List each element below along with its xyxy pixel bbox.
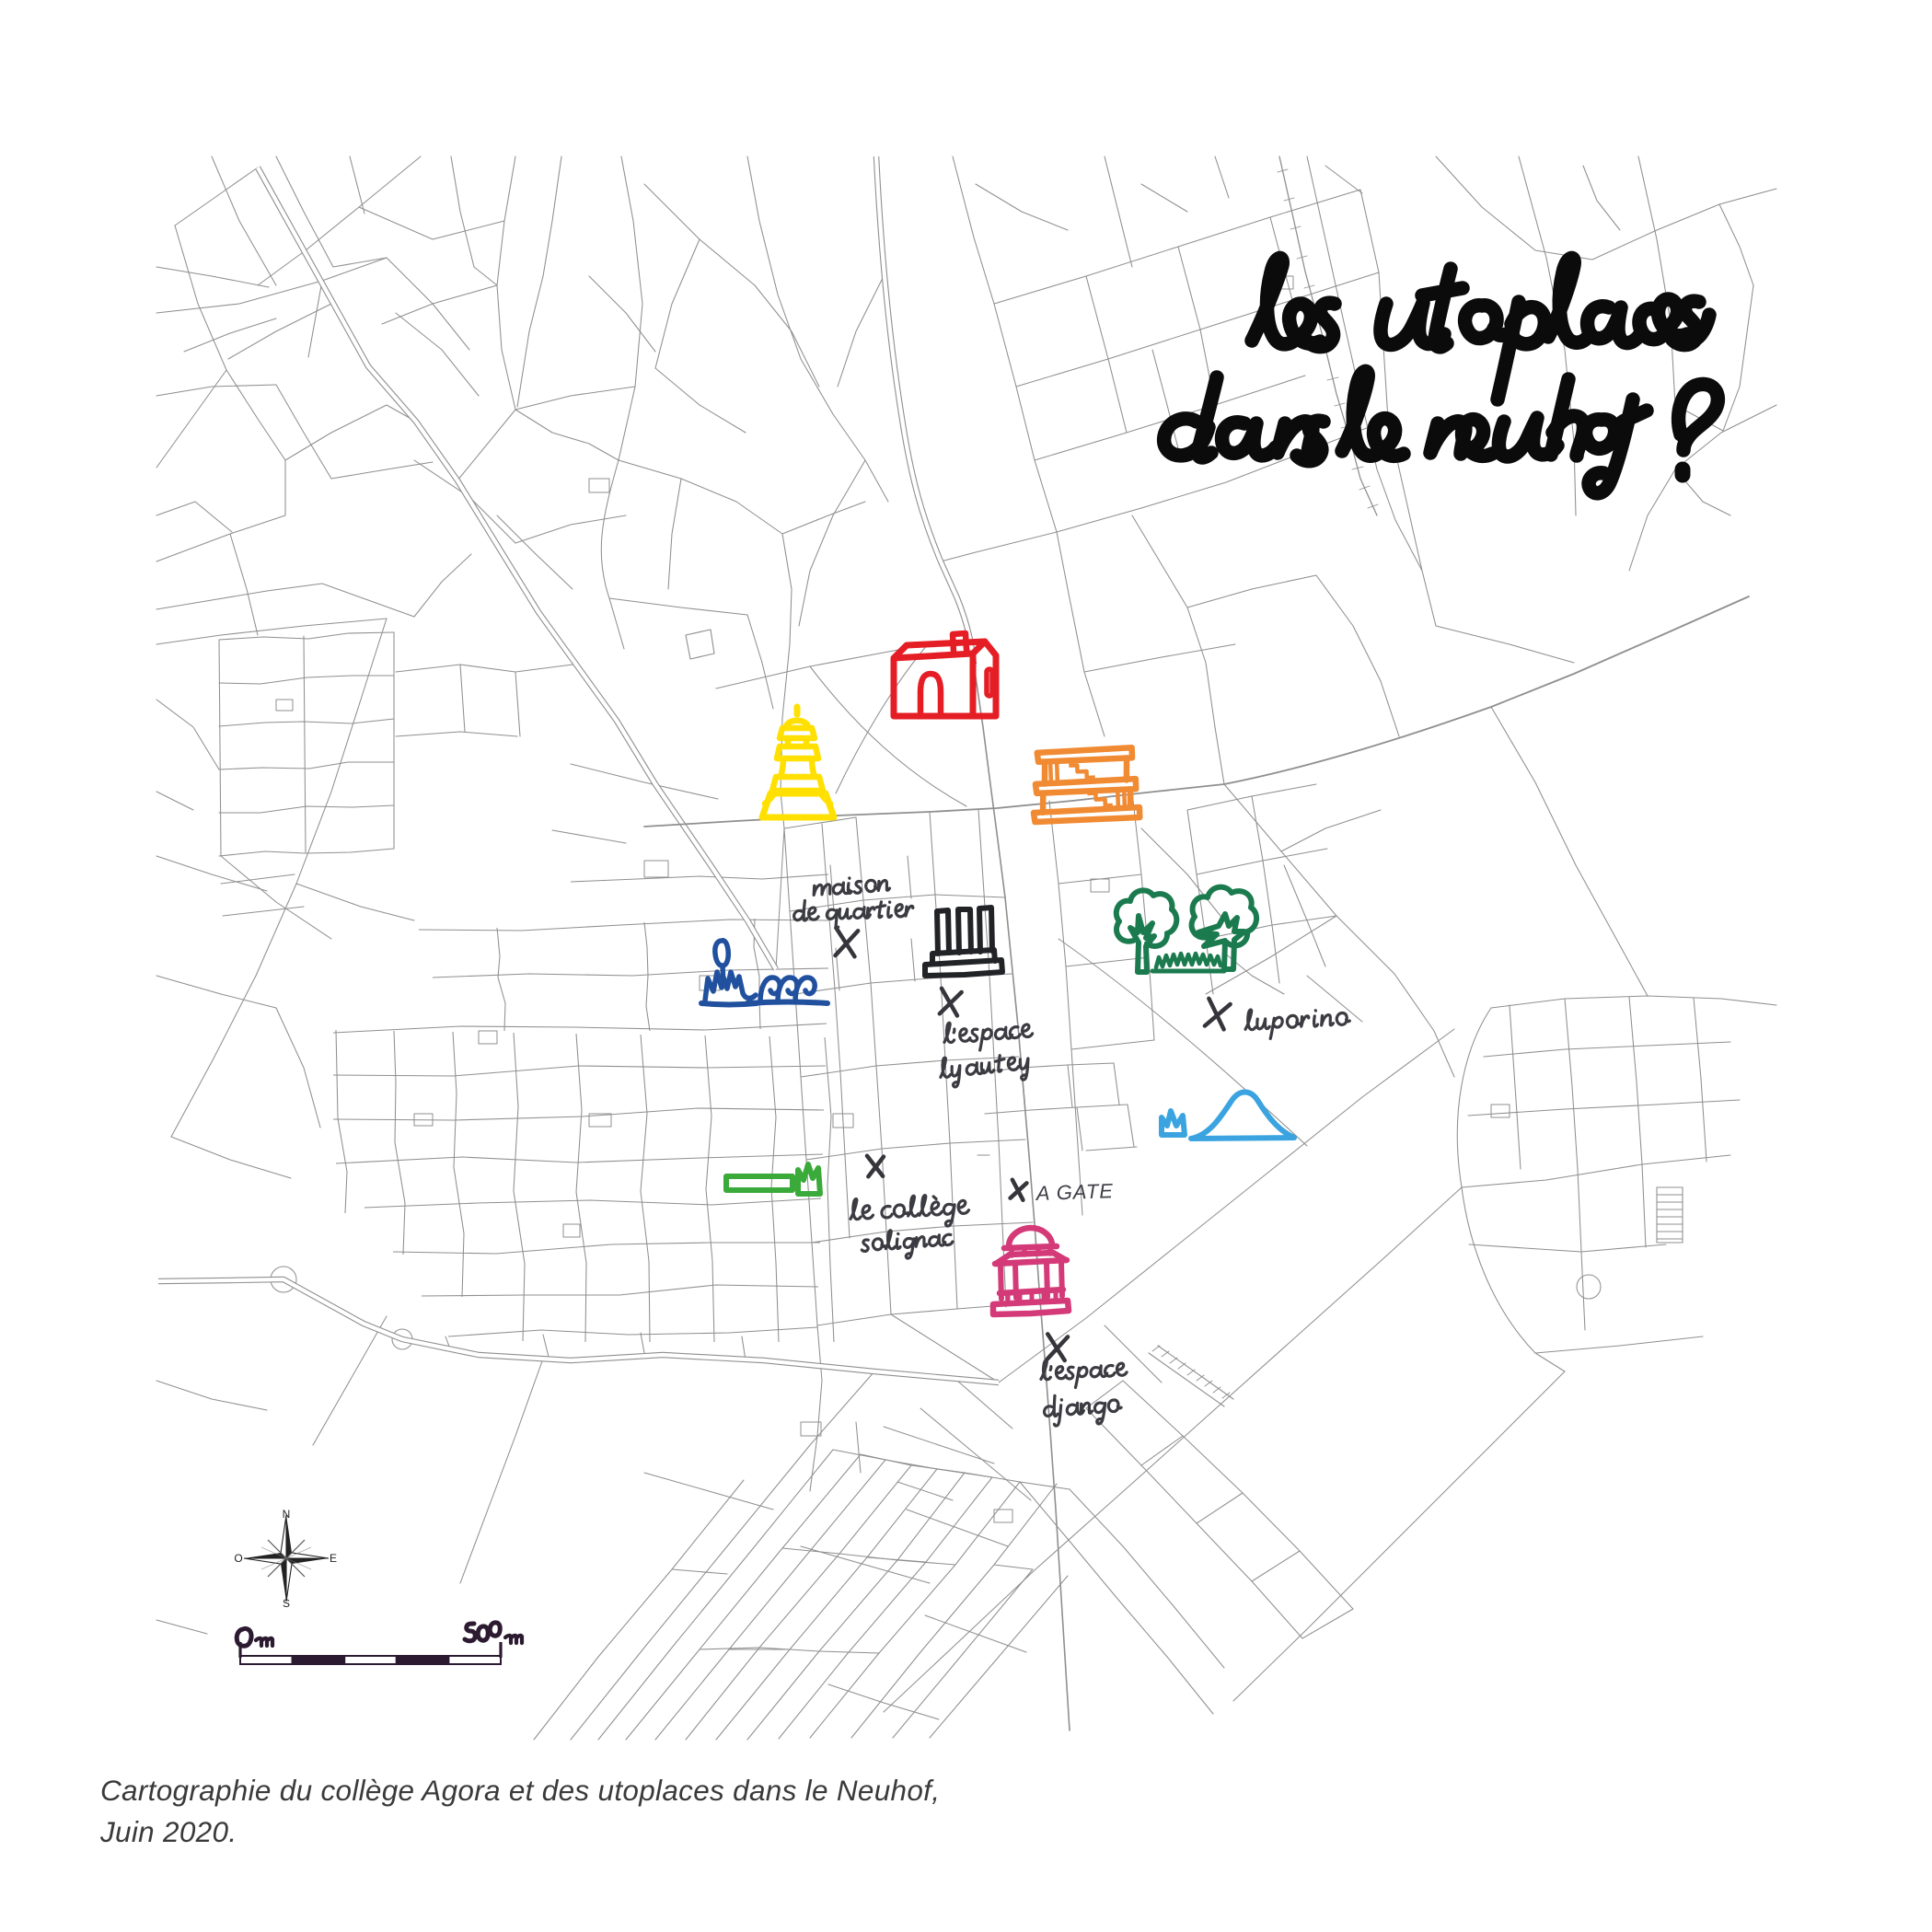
svg-text:E: E bbox=[330, 1552, 337, 1565]
svg-text:Cartographie du collège Agora: Cartographie du collège Agora et des uto… bbox=[100, 1774, 940, 1807]
svg-text:Juin 2020.: Juin 2020. bbox=[99, 1815, 237, 1848]
svg-text:S: S bbox=[283, 1597, 290, 1610]
svg-text:A GATE: A GATE bbox=[1034, 1179, 1114, 1205]
svg-text:N: N bbox=[283, 1508, 291, 1521]
svg-text:O: O bbox=[234, 1552, 242, 1565]
